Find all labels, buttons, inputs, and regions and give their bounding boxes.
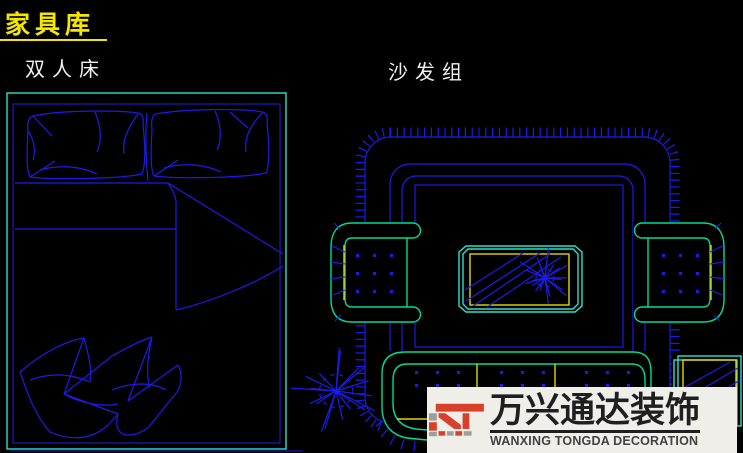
pillow-crease [146,113,148,181]
blanket [15,183,283,310]
watermark-logo-icon [429,390,485,450]
armchair-right[interactable] [633,222,725,323]
watermark: 万兴通达装饰 WANXING TONGDA DECORATION [427,387,737,453]
cad-canvas: 家具库 双人床 沙发组 [0,0,743,453]
armchair-left[interactable] [330,222,422,323]
coffee-table[interactable] [458,245,584,314]
bed-drawing[interactable] [7,93,303,451]
pillow-right [151,110,269,178]
watermark-brand-en: WANXING TONGDA DECORATION [490,435,700,448]
logo-mark [429,404,484,436]
crumpled-quilt [20,337,181,438]
cad-drawing [0,0,743,453]
watermark-brand-cn: 万兴通达装饰 [490,393,700,433]
pillow-left [27,111,145,179]
